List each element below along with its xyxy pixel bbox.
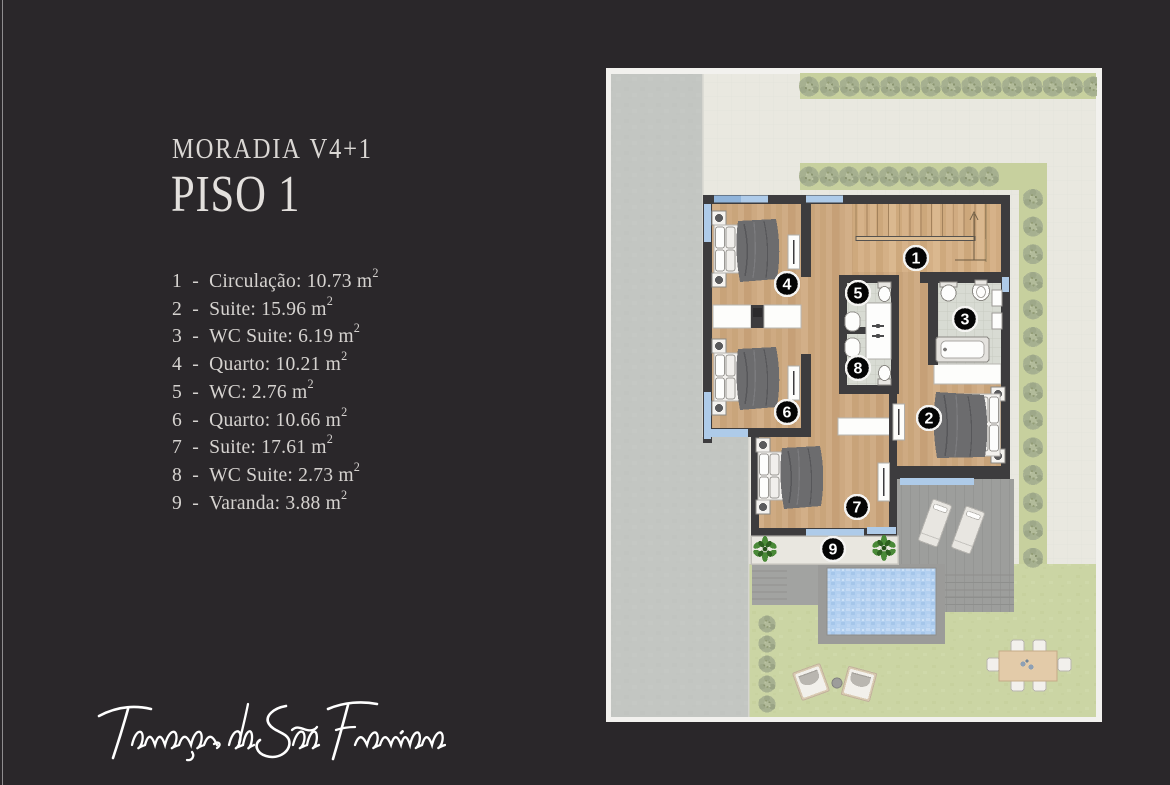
svg-text:8: 8 bbox=[854, 361, 863, 378]
svg-text:3: 3 bbox=[961, 312, 970, 329]
svg-text:5: 5 bbox=[854, 286, 863, 303]
svg-text:1: 1 bbox=[912, 251, 921, 268]
svg-text:7: 7 bbox=[853, 500, 862, 517]
svg-text:6: 6 bbox=[783, 405, 792, 422]
svg-text:2: 2 bbox=[925, 411, 934, 428]
svg-text:9: 9 bbox=[829, 542, 838, 559]
svg-text:4: 4 bbox=[783, 277, 792, 294]
